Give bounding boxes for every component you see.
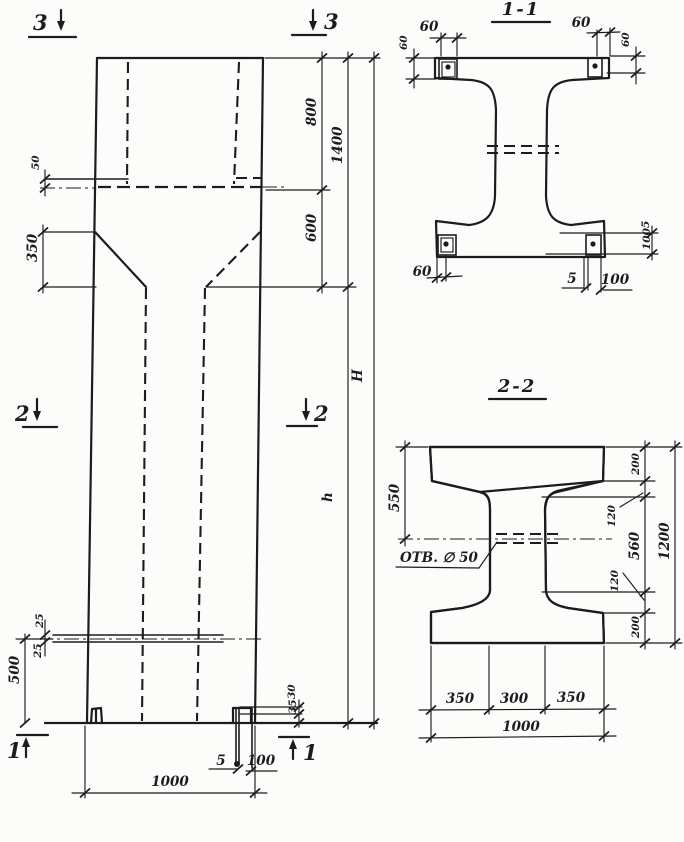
dim-1200-label: 1200 xyxy=(657,522,673,560)
hole-label: ОТВ. ∅ 50 xyxy=(400,550,478,566)
dim-35-label: 35 xyxy=(287,699,299,714)
section-2-2-view: 2-2 ОТВ. ∅ 50 550 xyxy=(387,376,682,743)
section-cut-markers: 3 3 2 2 1 xyxy=(7,9,339,765)
dim-25-bottom-label: 25 xyxy=(32,643,44,659)
cut-marker-2-left: 2 xyxy=(14,399,57,427)
cut-2-left-label: 2 xyxy=(14,401,30,426)
dim-560-label: 560 xyxy=(627,531,643,560)
dim-200-bottom-label: 200 xyxy=(630,615,642,639)
hidden-edges xyxy=(38,62,284,721)
section-1-1-hole xyxy=(487,146,559,153)
dim-h-label: h xyxy=(320,492,336,502)
drawing-sheet: 800 1400 600 H h 50 350 25 25 500 xyxy=(0,0,684,842)
section-1-1-outline xyxy=(435,58,609,257)
section-2-2-title: 2-2 xyxy=(497,376,537,397)
dim-60-tr-label: 60 xyxy=(572,15,591,31)
section-2-2-outline-main xyxy=(430,447,604,643)
cut-3-left-label: 3 xyxy=(33,10,48,35)
dim-1000-label: 1000 xyxy=(151,774,189,790)
dim-120-top-label: 120 xyxy=(606,504,618,527)
section-2-2-outline xyxy=(430,447,604,643)
drawing-canvas: 800 1400 600 H h 50 350 25 25 500 xyxy=(0,0,684,842)
dim-5-s1-label: 5 xyxy=(567,271,576,287)
dim-120-bottom-label: 120 xyxy=(609,569,621,592)
dim-600-label: 600 xyxy=(304,213,320,242)
dim-500-label: 500 xyxy=(7,655,23,684)
dim-350-left-label: 350 xyxy=(446,691,475,707)
dim-350-label: 350 xyxy=(25,233,41,262)
dim-H-label: H xyxy=(350,368,366,383)
dim-100-s1r-label: 100 xyxy=(641,227,653,250)
cut-marker-3-right: 3 xyxy=(292,9,339,35)
cut-1-right-label: 1 xyxy=(303,740,318,765)
cut-1-left-label: 1 xyxy=(7,738,22,763)
cut-marker-2-right: 2 xyxy=(287,399,329,426)
dim-5-base-label: 5 xyxy=(216,753,225,769)
dim-1000-s2-label: 1000 xyxy=(502,719,540,735)
dim-550-label: 550 xyxy=(387,483,403,512)
dim-50-label: 50 xyxy=(30,155,42,170)
dim-60-right-label: 60 xyxy=(620,32,632,47)
section-2-2-hole xyxy=(398,534,612,543)
hole-callout: ОТВ. ∅ 50 xyxy=(396,542,497,568)
dim-800-label: 800 xyxy=(304,97,320,126)
dim-5-s1r-label: 5 xyxy=(640,221,652,228)
cut-marker-1-left: 1 xyxy=(7,735,48,763)
dim-60-tl-label: 60 xyxy=(420,19,439,35)
dim-60-bl-label: 60 xyxy=(413,264,432,280)
cut-marker-1-right: 1 xyxy=(279,737,318,765)
section-1-1-view: 1-1 60 xyxy=(398,0,658,295)
cut-marker-3-left: 3 xyxy=(29,10,76,37)
embedded-plates xyxy=(438,58,602,255)
dim-25-top-label: 25 xyxy=(34,613,46,629)
dim-30-label: 30 xyxy=(286,684,298,699)
dim-300-label: 300 xyxy=(500,691,529,707)
cut-2-right-label: 2 xyxy=(313,401,329,426)
dim-1400-label: 1400 xyxy=(330,126,346,164)
dim-100-base-label: 100 xyxy=(247,753,276,769)
dim-60-left-label: 60 xyxy=(398,35,410,50)
section-1-1-title: 1-1 xyxy=(502,0,541,20)
cut-3-right-label: 3 xyxy=(324,9,339,34)
dim-350-right-label: 350 xyxy=(557,690,586,706)
elevation-view: 800 1400 600 H h 50 350 25 25 500 xyxy=(7,9,380,798)
dim-200-top-label: 200 xyxy=(630,452,642,476)
